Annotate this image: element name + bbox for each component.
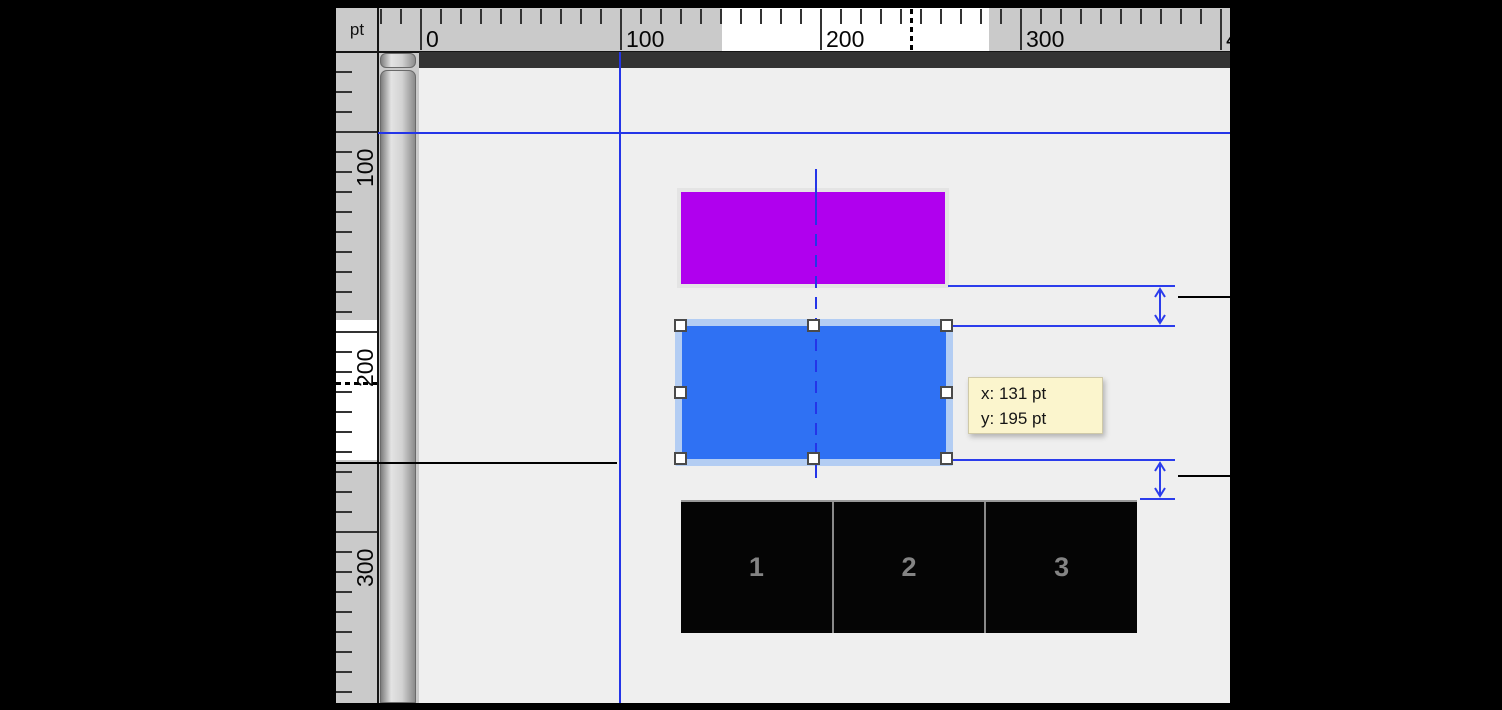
dimension-extension-line-blue-bottom: [952, 459, 1175, 461]
h-ruler-major-tick: [820, 9, 822, 50]
h-ruler-minor-tick: [380, 9, 382, 24]
v-ruler-minor-tick: [336, 651, 352, 653]
ruler-unit-box[interactable]: pt: [336, 8, 378, 51]
h-ruler-minor-tick: [1040, 9, 1042, 24]
v-ruler-minor-tick: [336, 371, 352, 373]
h-ruler-minor-tick: [760, 9, 762, 24]
table-cell-1[interactable]: 1: [681, 502, 832, 633]
h-ruler-minor-tick: [860, 9, 862, 24]
h-ruler-minor-tick: [980, 9, 982, 24]
v-ruler-minor-tick: [336, 591, 352, 593]
v-ruler-minor-tick: [336, 171, 352, 173]
h-ruler-minor-tick: [640, 9, 642, 24]
h-ruler-minor-tick: [680, 9, 682, 24]
v-ruler-minor-tick: [336, 151, 352, 153]
h-ruler-minor-tick: [840, 9, 842, 24]
selection-handle-middle-right[interactable]: [940, 386, 953, 399]
h-ruler-minor-tick: [700, 9, 702, 24]
app-window-content: pt 0100200300400 100200300 123: [336, 8, 1230, 703]
v-ruler-minor-tick: [336, 211, 352, 213]
h-ruler-label-200: 200: [826, 26, 864, 53]
v-ruler-minor-tick: [336, 471, 352, 473]
h-ruler-minor-tick: [940, 9, 942, 24]
h-ruler-minor-tick: [660, 9, 662, 24]
v-ruler-minor-tick: [336, 191, 352, 193]
dimension-arrow-lower: [1152, 460, 1168, 499]
dimension-extension-line-blue-top: [948, 325, 1175, 327]
h-ruler-minor-tick: [1000, 9, 1002, 24]
v-ruler-minor-tick: [336, 291, 352, 293]
h-ruler-label-100: 100: [626, 26, 664, 53]
dimension-arrow-upper: [1152, 286, 1168, 326]
h-ruler-major-tick: [1020, 9, 1022, 50]
ruler-unit-label: pt: [350, 20, 364, 40]
v-ruler-label-100: 100: [352, 133, 376, 187]
h-ruler-major-tick: [1220, 9, 1222, 50]
v-ruler-minor-tick: [336, 631, 352, 633]
h-ruler-label-0: 0: [426, 26, 439, 53]
h-ruler-minor-tick: [1180, 9, 1182, 24]
v-ruler-minor-tick: [336, 411, 352, 413]
scrollbar-thumb[interactable]: [380, 70, 416, 703]
v-ruler-minor-tick: [336, 91, 352, 93]
h-ruler-minor-tick: [920, 9, 922, 24]
v-ruler-minor-tick: [336, 231, 352, 233]
h-ruler-minor-tick: [1200, 9, 1202, 24]
h-ruler-minor-tick: [600, 9, 602, 24]
h-ruler-minor-tick: [1120, 9, 1122, 24]
scrollbar-cap[interactable]: [380, 53, 416, 68]
v-ruler-label-200: 200: [352, 333, 376, 387]
h-ruler-minor-tick: [500, 9, 502, 24]
h-ruler-minor-tick: [1080, 9, 1082, 24]
table-cell-label: 2: [901, 552, 916, 583]
h-ruler-minor-tick: [900, 9, 902, 24]
v-ruler-minor-tick: [336, 311, 352, 313]
v-ruler-minor-tick: [336, 111, 352, 113]
horizontal-ruler[interactable]: 0100200300400: [378, 8, 1230, 51]
v-ruler-minor-tick: [336, 451, 352, 453]
v-ruler-minor-tick: [336, 551, 352, 553]
blue-rectangle-shape[interactable]: [682, 326, 946, 459]
h-ruler-label-300: 300: [1026, 26, 1064, 53]
h-ruler-minor-tick: [740, 9, 742, 24]
v-ruler-minor-tick: [336, 611, 352, 613]
horizontal-ruler-cursor-marker: [910, 9, 913, 50]
selection-handle-bottom-center[interactable]: [807, 452, 820, 465]
v-ruler-minor-tick: [336, 251, 352, 253]
v-ruler-minor-tick: [336, 391, 352, 393]
h-ruler-major-tick: [420, 9, 422, 50]
vertical-guide-100pt[interactable]: [619, 52, 621, 703]
selection-handle-top-right[interactable]: [940, 319, 953, 332]
selection-handle-bottom-right[interactable]: [940, 452, 953, 465]
h-ruler-minor-tick: [520, 9, 522, 24]
h-ruler-label-400: 400: [1226, 26, 1230, 53]
v-ruler-minor-tick: [336, 671, 352, 673]
selection-handle-top-center[interactable]: [807, 319, 820, 332]
h-ruler-minor-tick: [800, 9, 802, 24]
h-ruler-minor-tick: [400, 9, 402, 24]
magenta-rectangle-shape[interactable]: [677, 188, 949, 288]
v-ruler-label-300: 300: [352, 533, 376, 587]
h-ruler-minor-tick: [480, 9, 482, 24]
dimension-extension-line-magenta-bottom: [948, 285, 1175, 287]
black-connector-line-left: [336, 462, 617, 464]
h-ruler-minor-tick: [720, 9, 722, 24]
v-ruler-minor-tick: [336, 271, 352, 273]
h-ruler-minor-tick: [540, 9, 542, 24]
tooltip-x-value: x: 131 pt: [981, 381, 1102, 406]
h-ruler-minor-tick: [960, 9, 962, 24]
h-ruler-minor-tick: [1160, 9, 1162, 24]
h-ruler-minor-tick: [1140, 9, 1142, 24]
table-cell-label: 1: [749, 552, 764, 583]
h-ruler-minor-tick: [1100, 9, 1102, 24]
v-ruler-minor-tick: [336, 431, 352, 433]
screenshot-root: { "colors": { "frame": "#000000", "ruler…: [0, 0, 1502, 710]
v-ruler-minor-tick: [336, 351, 352, 353]
selection-handle-bottom-left[interactable]: [674, 452, 687, 465]
h-ruler-major-tick: [620, 9, 622, 50]
table-cell-2[interactable]: 2: [832, 502, 985, 633]
pasteboard-strip: [419, 52, 1230, 68]
v-ruler-minor-tick: [336, 491, 352, 493]
position-tooltip: x: 131 pt y: 195 pt: [968, 377, 1103, 434]
h-ruler-minor-tick: [560, 9, 562, 24]
v-ruler-minor-tick: [336, 71, 352, 73]
v-ruler-minor-tick: [336, 511, 352, 513]
v-ruler-minor-tick: [336, 571, 352, 573]
ruler-right-separator: [377, 8, 379, 703]
h-ruler-minor-tick: [780, 9, 782, 24]
h-ruler-minor-tick: [440, 9, 442, 24]
horizontal-guide-100pt[interactable]: [378, 132, 1230, 134]
selection-halo: [675, 319, 953, 466]
v-ruler-minor-tick: [336, 691, 352, 693]
black-connector-line-lower-right: [1178, 475, 1230, 477]
h-ruler-minor-tick: [580, 9, 582, 24]
table-cell-label: 3: [1054, 552, 1069, 583]
selection-handle-top-left[interactable]: [674, 319, 687, 332]
h-ruler-minor-tick: [1060, 9, 1062, 24]
tooltip-y-value: y: 195 pt: [981, 406, 1102, 431]
h-ruler-minor-tick: [460, 9, 462, 24]
table-cell-3[interactable]: 3: [984, 502, 1137, 633]
vertical-ruler[interactable]: 100200300: [336, 51, 378, 703]
table-shape[interactable]: 123: [681, 500, 1137, 633]
h-ruler-minor-tick: [880, 9, 882, 24]
selection-handle-middle-left[interactable]: [674, 386, 687, 399]
center-guide-top-segment: [815, 169, 817, 213]
black-connector-line-upper-right: [1178, 296, 1230, 298]
